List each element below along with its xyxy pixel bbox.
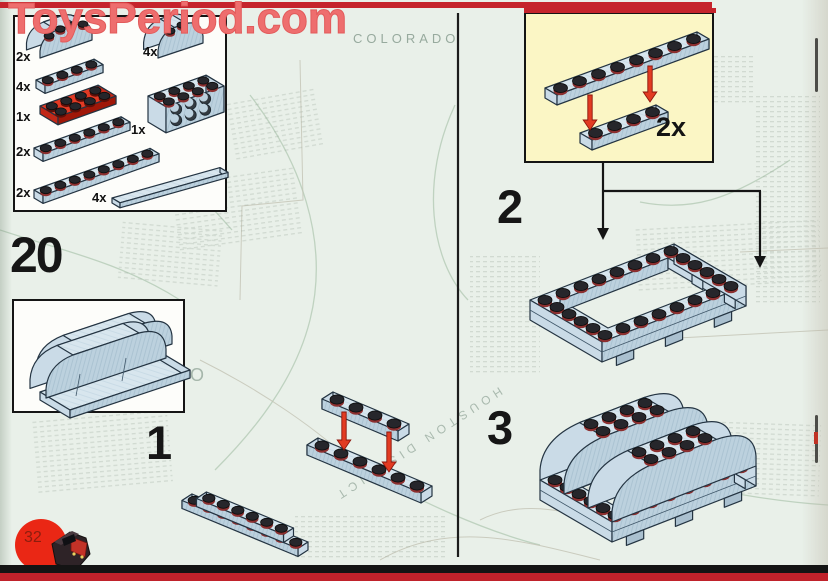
- instruction-art: [0, 0, 828, 581]
- staple-bottom-red-mark: [814, 432, 818, 444]
- part-qty-brick-2x4: 1x: [131, 122, 145, 137]
- page-bottom-red-border: [0, 573, 828, 581]
- step-3-label: 3: [487, 404, 513, 451]
- staple-top-icon: [815, 38, 818, 92]
- part-qty-plate-1x6: 2x: [16, 144, 30, 159]
- step-2-label: 2: [497, 183, 523, 230]
- inset-quantity-label: 2x: [656, 112, 686, 143]
- toysperiod-watermark: ToysPeriod.com: [8, 0, 347, 44]
- part-qty-curved-small: 4x: [143, 44, 157, 59]
- step-1-label: 1: [146, 419, 172, 466]
- page-bottom-black-border: [0, 565, 828, 573]
- part-qty-plate-2x4-red: 1x: [16, 109, 30, 124]
- part-qty-tile-1x8: 4x: [92, 190, 106, 205]
- part-qty-fender: 2x: [16, 49, 30, 64]
- instruction-page: COLORADO ICO HOUSTON DISTRICT ToysPeriod…: [0, 0, 828, 581]
- part-qty-plate-1x8: 2x: [16, 185, 30, 200]
- page-number: 32: [24, 529, 42, 547]
- part-qty-plate-1x4: 4x: [16, 79, 30, 94]
- step-20-title: 20: [10, 230, 62, 280]
